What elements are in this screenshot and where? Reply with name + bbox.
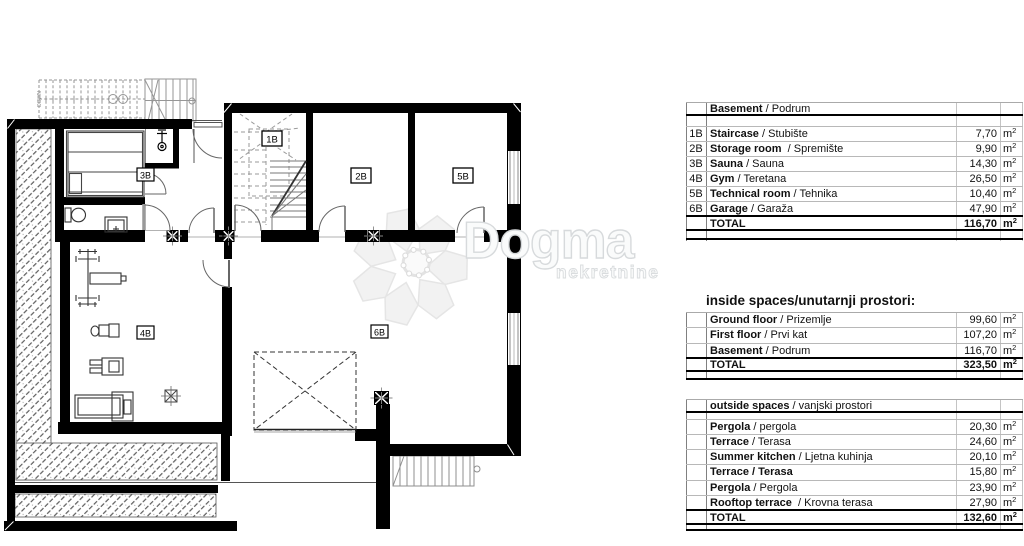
svg-text:DOWN: DOWN xyxy=(37,91,43,107)
svg-text:4B: 4B xyxy=(140,329,151,339)
svg-text:5B: 5B xyxy=(457,172,469,183)
svg-text:3B: 3B xyxy=(140,171,151,181)
svg-text:1B: 1B xyxy=(266,135,278,146)
svg-text:nekretnine: nekretnine xyxy=(556,262,660,282)
svg-text:6B: 6B xyxy=(374,328,385,338)
svg-text:2B: 2B xyxy=(355,172,367,183)
svg-text:Dogma: Dogma xyxy=(463,211,635,269)
